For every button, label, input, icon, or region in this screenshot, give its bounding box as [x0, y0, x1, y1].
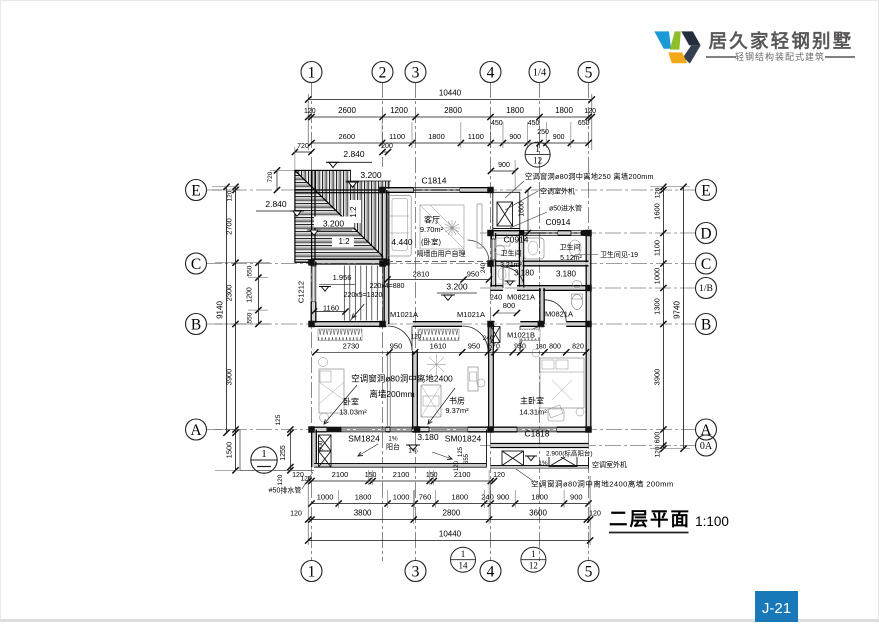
svg-text:C1814: C1814	[421, 176, 446, 186]
svg-text:760: 760	[419, 493, 432, 502]
svg-text:C0914: C0914	[545, 217, 570, 227]
svg-text:1200: 1200	[390, 106, 408, 115]
svg-text:9.37m²: 9.37m²	[445, 406, 469, 415]
svg-text:900: 900	[553, 134, 565, 141]
svg-text:3: 3	[412, 64, 420, 81]
svg-text:M1021A: M1021A	[457, 310, 485, 319]
svg-text:2700: 2700	[225, 218, 234, 235]
svg-text:1600: 1600	[519, 201, 526, 217]
svg-text:180: 180	[536, 344, 547, 351]
svg-text:1610: 1610	[430, 342, 447, 351]
svg-text:3600: 3600	[529, 509, 547, 518]
svg-text:1%: 1%	[388, 436, 398, 443]
svg-text:900: 900	[509, 134, 521, 141]
svg-text:120: 120	[227, 190, 234, 201]
svg-text:轻钢结构装配式建筑: 轻钢结构装配式建筑	[735, 51, 825, 62]
svg-text:1: 1	[261, 448, 267, 460]
svg-text:2: 2	[379, 64, 387, 81]
svg-text:1800: 1800	[428, 132, 445, 141]
svg-text:1: 1	[531, 549, 536, 559]
svg-text:卫生间见-19: 卫生间见-19	[600, 250, 638, 259]
svg-text:2.840: 2.840	[265, 199, 287, 209]
svg-text:3900: 3900	[225, 369, 234, 386]
svg-text:1: 1	[535, 144, 540, 154]
svg-text:240: 240	[481, 493, 494, 502]
svg-text:C: C	[191, 256, 201, 273]
svg-text:1255: 1255	[280, 445, 287, 461]
svg-text:3: 3	[412, 563, 420, 580]
svg-text:240: 240	[483, 335, 494, 342]
svg-text:550: 550	[247, 265, 254, 276]
svg-text:1000: 1000	[393, 493, 410, 502]
svg-text:120: 120	[584, 108, 596, 115]
svg-text:书房: 书房	[449, 396, 465, 406]
svg-text:120: 120	[277, 474, 284, 485]
svg-text:D: D	[700, 225, 711, 242]
svg-text:E: E	[191, 182, 200, 199]
svg-text:720: 720	[297, 143, 309, 150]
svg-text:800: 800	[549, 344, 561, 351]
svg-text:12: 12	[533, 156, 542, 166]
svg-text:空调窗洞ø80洞中离地2400离墙 200mm: 空调窗洞ø80洞中离地2400离墙 200mm	[531, 479, 674, 489]
svg-text:1000: 1000	[652, 268, 661, 285]
svg-text:E: E	[701, 182, 710, 199]
svg-text:550: 550	[247, 312, 254, 323]
svg-text:1.956: 1.956	[333, 273, 352, 282]
svg-text:600: 600	[654, 432, 661, 444]
svg-text:10440: 10440	[439, 530, 462, 539]
svg-text:(卧室): (卧室)	[421, 237, 441, 247]
svg-text:120: 120	[654, 446, 661, 457]
svg-text:隔墙由用户自理: 隔墙由用户自理	[417, 249, 466, 258]
svg-text:13.03m²: 13.03m²	[339, 408, 367, 417]
svg-text:900: 900	[497, 493, 510, 502]
svg-text:3800: 3800	[354, 509, 372, 518]
svg-text:950: 950	[468, 342, 481, 351]
svg-text:居久家轻钢别墅: 居久家轻钢别墅	[709, 31, 854, 52]
svg-text:3.200: 3.200	[323, 219, 345, 229]
svg-text:1200: 1200	[247, 287, 254, 303]
svg-text:卫生间: 卫生间	[501, 249, 522, 258]
svg-text:10440: 10440	[439, 89, 462, 98]
svg-text:125: 125	[275, 414, 282, 425]
svg-text:1800: 1800	[531, 493, 548, 502]
svg-text:1%: 1%	[538, 460, 548, 467]
svg-text:1100: 1100	[468, 132, 484, 141]
svg-text:120: 120	[304, 108, 316, 115]
svg-text:SM01824: SM01824	[445, 434, 482, 444]
svg-text:655: 655	[464, 453, 470, 464]
svg-text:220x5=1320: 220x5=1320	[344, 292, 383, 299]
svg-text:4.440: 4.440	[391, 237, 413, 247]
svg-text:3.180: 3.180	[556, 270, 577, 279]
svg-text:900: 900	[570, 493, 583, 502]
svg-text:5: 5	[585, 64, 593, 81]
svg-text:SM1824: SM1824	[348, 434, 380, 444]
svg-text:120: 120	[493, 472, 505, 479]
svg-text:2300: 2300	[225, 285, 234, 302]
svg-text:250: 250	[537, 129, 549, 136]
svg-text:2.840: 2.840	[343, 149, 365, 159]
svg-text:C: C	[701, 256, 711, 273]
svg-text:1800: 1800	[555, 106, 573, 115]
svg-text:3.180: 3.180	[514, 269, 535, 278]
svg-text:二层平面: 二层平面	[609, 509, 691, 530]
svg-text:200: 200	[381, 143, 393, 150]
svg-text:1: 1	[308, 563, 316, 580]
svg-text:B: B	[701, 316, 711, 333]
svg-text:1/B: 1/B	[699, 284, 713, 294]
svg-text:120: 120	[454, 460, 460, 471]
svg-text:2600: 2600	[338, 132, 355, 141]
svg-text:空调窗洞ø80洞中离地2400: 空调窗洞ø80洞中离地2400	[351, 374, 453, 384]
svg-text:120: 120	[589, 511, 601, 518]
svg-text:B: B	[191, 316, 201, 333]
svg-text:3.200: 3.200	[446, 282, 468, 292]
svg-text:A: A	[190, 422, 202, 439]
svg-text:1600: 1600	[652, 203, 661, 220]
svg-text:9140: 9140	[216, 301, 225, 319]
svg-text:1000: 1000	[317, 493, 334, 502]
svg-text:M1021B: M1021B	[507, 331, 535, 340]
svg-text:1:100: 1:100	[695, 514, 729, 529]
svg-text:2810: 2810	[413, 270, 430, 279]
svg-text:3.200: 3.200	[360, 170, 382, 180]
svg-text:2800: 2800	[443, 509, 461, 518]
svg-text:空调窗洞ø80洞中离地250 离墙200mm: 空调窗洞ø80洞中离地250 离墙200mm	[525, 172, 654, 181]
svg-text:J-21: J-21	[762, 600, 791, 617]
svg-text:2100: 2100	[332, 470, 349, 479]
svg-text:C1818: C1818	[524, 429, 549, 439]
svg-text:800: 800	[503, 301, 516, 310]
svg-text:1300: 1300	[652, 298, 661, 315]
svg-text:240: 240	[481, 262, 487, 273]
svg-text:1100: 1100	[389, 132, 405, 141]
svg-text:客厅: 客厅	[424, 215, 440, 225]
svg-text:120: 120	[290, 511, 302, 518]
svg-text:220x4=880: 220x4=880	[370, 283, 405, 290]
svg-text:9740: 9740	[673, 301, 682, 319]
svg-text:12: 12	[529, 561, 538, 571]
svg-text:120: 120	[411, 334, 422, 341]
svg-text:1: 1	[308, 64, 316, 81]
svg-text:9.70m²: 9.70m²	[420, 225, 444, 234]
svg-text:1: 1	[461, 549, 466, 559]
svg-text:150: 150	[426, 472, 438, 479]
svg-text:150: 150	[365, 472, 377, 479]
svg-text:2100: 2100	[393, 470, 410, 479]
svg-text:1:2: 1:2	[349, 206, 358, 218]
svg-text:1800: 1800	[451, 493, 468, 502]
svg-text:5: 5	[585, 563, 593, 580]
svg-text:120: 120	[654, 187, 661, 198]
svg-text:3.180: 3.180	[417, 432, 439, 442]
svg-text:阳台: 阳台	[386, 442, 400, 451]
svg-text:2.900(标高阳台): 2.900(标高阳台)	[546, 449, 593, 458]
svg-text:450: 450	[528, 120, 540, 127]
svg-text:720: 720	[267, 171, 274, 182]
svg-text:空调室外机: 空调室外机	[592, 460, 627, 469]
svg-text:1/4: 1/4	[533, 68, 547, 79]
svg-text:1800: 1800	[355, 493, 372, 502]
svg-text:离墙200mm: 离墙200mm	[369, 389, 414, 399]
svg-text:450: 450	[491, 120, 503, 127]
svg-text:240: 240	[490, 293, 503, 302]
svg-text:卫生间: 卫生间	[560, 243, 581, 252]
svg-text:2730: 2730	[343, 342, 360, 351]
svg-text:空调室外机: 空调室外机	[540, 187, 575, 196]
svg-text:14: 14	[459, 561, 469, 571]
svg-text:C1212: C1212	[297, 281, 306, 303]
svg-text:主卧室: 主卧室	[520, 396, 544, 406]
svg-text:1100: 1100	[652, 240, 661, 256]
svg-text:ø50进水管: ø50进水管	[549, 204, 582, 213]
svg-text:650: 650	[578, 120, 590, 127]
svg-text:1:2: 1:2	[338, 237, 350, 246]
svg-text:4: 4	[487, 64, 495, 81]
svg-text:2800: 2800	[444, 106, 462, 115]
svg-text:820: 820	[572, 344, 584, 351]
svg-text:950: 950	[467, 270, 480, 279]
svg-text:3900: 3900	[652, 369, 661, 386]
svg-text:14.31m²: 14.31m²	[519, 408, 547, 417]
svg-text:1500: 1500	[225, 442, 234, 459]
svg-text:M0821A: M0821A	[545, 310, 573, 319]
svg-text:900: 900	[498, 162, 510, 169]
svg-text:900: 900	[318, 440, 325, 451]
svg-text:M1021A: M1021A	[390, 310, 418, 319]
svg-text:#50排水管: #50排水管	[269, 486, 302, 495]
svg-text:0A: 0A	[700, 441, 713, 452]
svg-text:1800: 1800	[506, 106, 524, 115]
svg-text:2600: 2600	[338, 106, 356, 115]
svg-text:4: 4	[487, 563, 495, 580]
svg-text:卧室: 卧室	[343, 397, 359, 407]
svg-text:1%: 1%	[408, 448, 418, 455]
